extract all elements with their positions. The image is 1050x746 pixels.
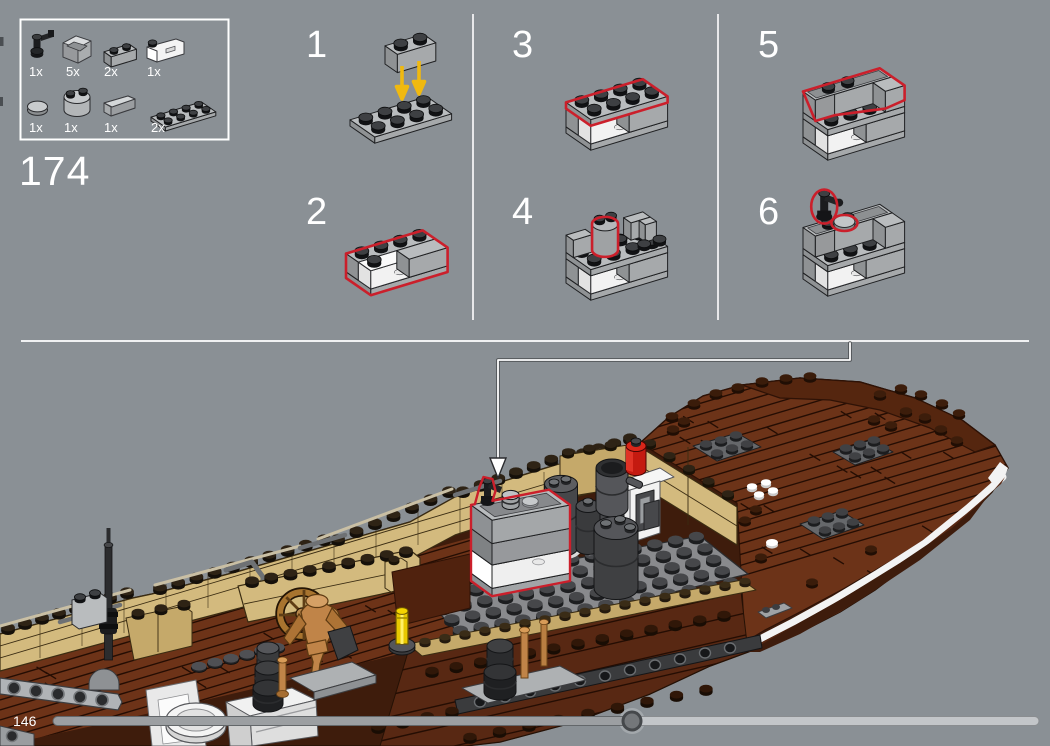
svg-text:146: 146 xyxy=(13,713,37,729)
svg-text:2x: 2x xyxy=(104,64,118,79)
svg-text:5: 5 xyxy=(758,24,779,66)
svg-text:4: 4 xyxy=(512,191,533,233)
svg-text:2x: 2x xyxy=(151,120,165,135)
svg-text:5x: 5x xyxy=(66,64,80,79)
svg-text:1: 1 xyxy=(306,24,327,66)
svg-text:3: 3 xyxy=(512,24,533,66)
svg-text:1x: 1x xyxy=(29,120,43,135)
svg-text:1x: 1x xyxy=(29,64,43,79)
svg-text:1x: 1x xyxy=(64,120,78,135)
svg-text:2: 2 xyxy=(306,191,327,233)
svg-text:174: 174 xyxy=(19,148,90,194)
svg-text:1x: 1x xyxy=(104,120,118,135)
svg-text:1x: 1x xyxy=(147,64,161,79)
svg-text:6: 6 xyxy=(758,191,779,233)
